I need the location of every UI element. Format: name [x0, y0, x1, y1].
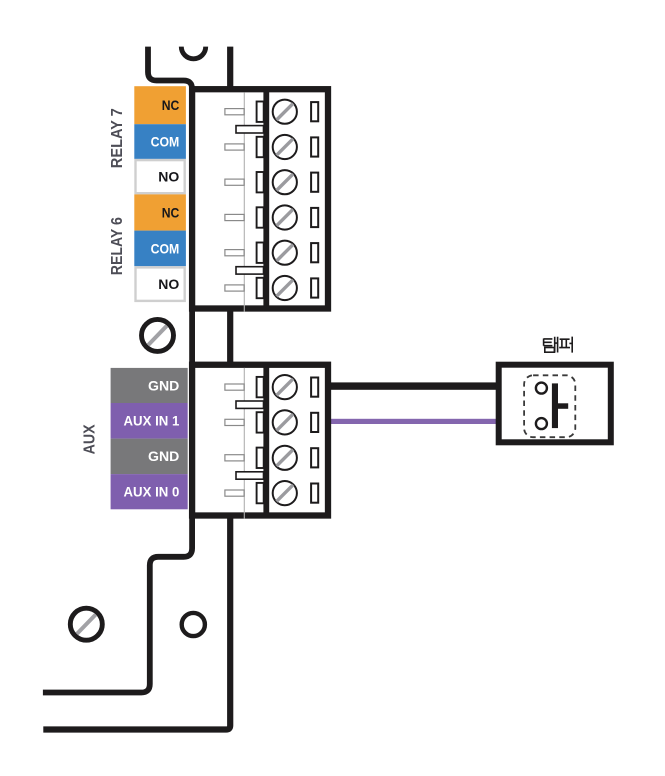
svg-text:NO: NO — [158, 169, 179, 185]
svg-text:COM: COM — [151, 240, 180, 256]
svg-text:NC: NC — [162, 97, 180, 113]
svg-text:RELAY 7: RELAY 7 — [109, 108, 126, 168]
svg-text:NO: NO — [158, 276, 179, 292]
svg-text:AUX IN 1: AUX IN 1 — [124, 413, 180, 429]
svg-text:GND: GND — [148, 377, 179, 393]
svg-text:NC: NC — [162, 204, 180, 220]
svg-text:AUX: AUX — [82, 424, 99, 454]
svg-text:COM: COM — [151, 134, 180, 150]
svg-text:GND: GND — [148, 448, 179, 464]
svg-text:AUX IN 0: AUX IN 0 — [124, 484, 180, 500]
svg-text:RELAY 6: RELAY 6 — [109, 217, 126, 275]
